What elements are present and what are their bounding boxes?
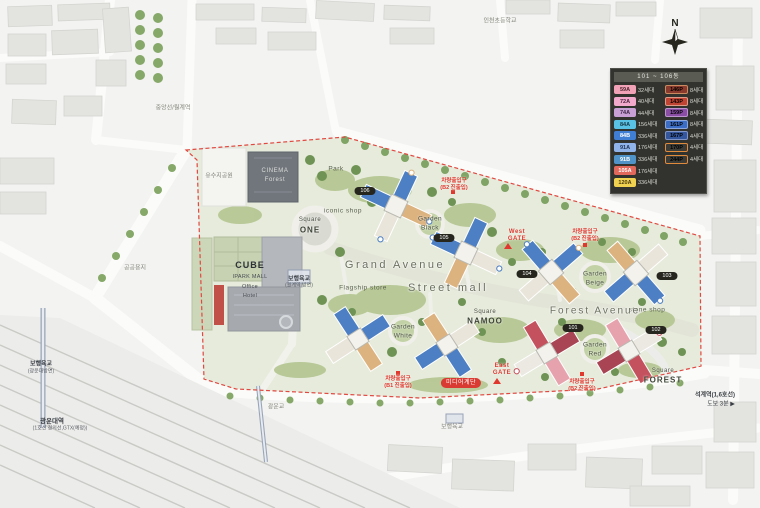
legend-row: 120A 336세대: [614, 178, 703, 187]
legend-row: 91A 176세대 170P 4세대: [614, 143, 703, 152]
legend-row: 59A 32세대 146P 8세대: [614, 85, 703, 94]
unit-type-badge: 84A: [614, 120, 636, 129]
unit-type-badge: [665, 178, 688, 187]
unit-type-badge: 105A: [614, 166, 636, 175]
building-badge-101: 101: [563, 324, 584, 332]
unit-type-badge: 91B: [614, 155, 636, 164]
unit-type-badge: 146P: [665, 85, 688, 94]
unit-legend: 101 ~ 106동 59A 32세대 146P 8세대 72A 40세대 14…: [610, 68, 707, 194]
legend-row: 72A 40세대 143P 8세대: [614, 97, 703, 106]
unit-type-badge: 91A: [614, 143, 636, 152]
unit-type-badge: 59A: [614, 85, 636, 94]
unit-count: 4세대: [690, 132, 711, 140]
media-stairs-badge: 미디어계단: [441, 378, 481, 388]
legend-title: 101 ~ 106동: [614, 72, 703, 82]
unit-count: 8세대: [690, 120, 711, 128]
legend-row: 84B 336세대 167P 4세대: [614, 131, 703, 140]
building-badge-106: 106: [355, 187, 376, 195]
unit-count: 8세대: [690, 109, 711, 117]
unit-count: 176세대: [638, 167, 663, 175]
compass-rose-icon: [662, 29, 688, 55]
compass: N: [658, 18, 692, 60]
unit-type-badge: [665, 166, 688, 175]
unit-count: 336세대: [638, 178, 663, 186]
unit-type-badge: 159P: [665, 108, 688, 117]
legend-row: 74A 44세대 159P 8세대: [614, 108, 703, 117]
unit-type-badge: 72A: [614, 97, 636, 106]
unit-count: 44세대: [638, 109, 663, 117]
unit-type-badge: 84B: [614, 131, 636, 140]
building-badge-104: 104: [517, 270, 538, 278]
unit-count: 4세대: [690, 155, 711, 163]
unit-type-badge: 120A: [614, 178, 636, 187]
unit-type-badge: 161P: [665, 120, 688, 129]
unit-type-badge: 74A: [614, 108, 636, 117]
building-badge-105: 105: [434, 234, 455, 242]
legend-row: 105A 176세대: [614, 166, 703, 175]
unit-type-badge: 143P: [665, 97, 688, 106]
unit-type-badge: 167P: [665, 131, 688, 140]
unit-count: 156세대: [638, 120, 663, 128]
unit-count: 32세대: [638, 86, 663, 94]
unit-count: 8세대: [690, 86, 711, 94]
legend-row: 84A 156세대 161P 8세대: [614, 120, 703, 129]
building-badge-103: 103: [657, 272, 678, 280]
unit-count: 176세대: [638, 143, 663, 151]
unit-count: 4세대: [690, 143, 711, 151]
site-plan: 인천초등학교 중앙선/월계역 공공용지 유수지공원 CINEMA Forest …: [0, 0, 760, 508]
unit-type-badge: 244P: [665, 155, 688, 164]
unit-count: 8세대: [690, 97, 711, 105]
unit-count: 336세대: [638, 132, 663, 140]
unit-type-badge: 170P: [665, 143, 688, 152]
building-badge-102: 102: [646, 326, 667, 334]
compass-n-label: N: [658, 18, 692, 29]
unit-count: 336세대: [638, 155, 663, 163]
unit-count: 40세대: [638, 97, 663, 105]
legend-row: 91B 336세대 244P 4세대: [614, 155, 703, 164]
